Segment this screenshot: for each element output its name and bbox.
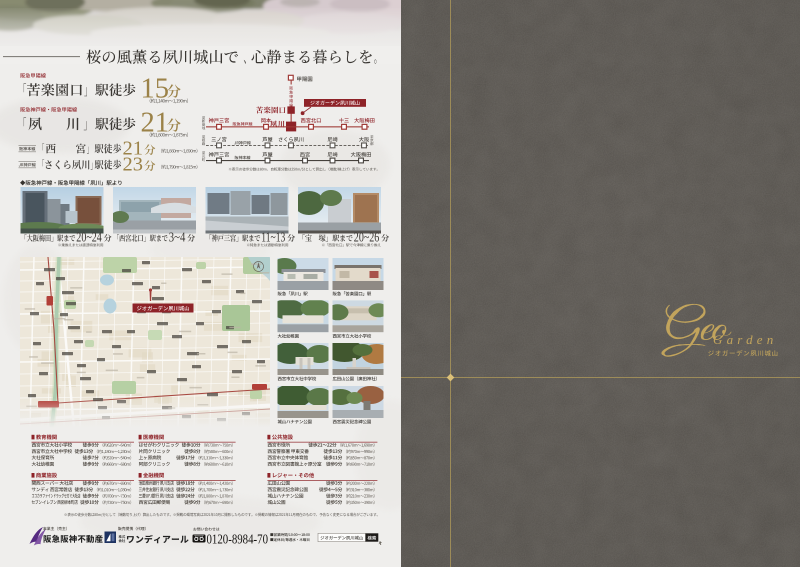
svg-text:0120-8984-70: 0120-8984-70 xyxy=(207,532,269,547)
svg-text:20~24: 20~24 xyxy=(76,229,102,244)
svg-text:3~4: 3~4 xyxy=(169,229,186,244)
svg-text:15: 15 xyxy=(141,74,170,105)
svg-text:20~26: 20~26 xyxy=(354,229,380,244)
svg-text:Garden: Garden xyxy=(713,332,777,347)
svg-text:23: 23 xyxy=(123,154,144,176)
svg-text:21: 21 xyxy=(141,108,170,139)
svg-text:11~13: 11~13 xyxy=(261,229,285,244)
